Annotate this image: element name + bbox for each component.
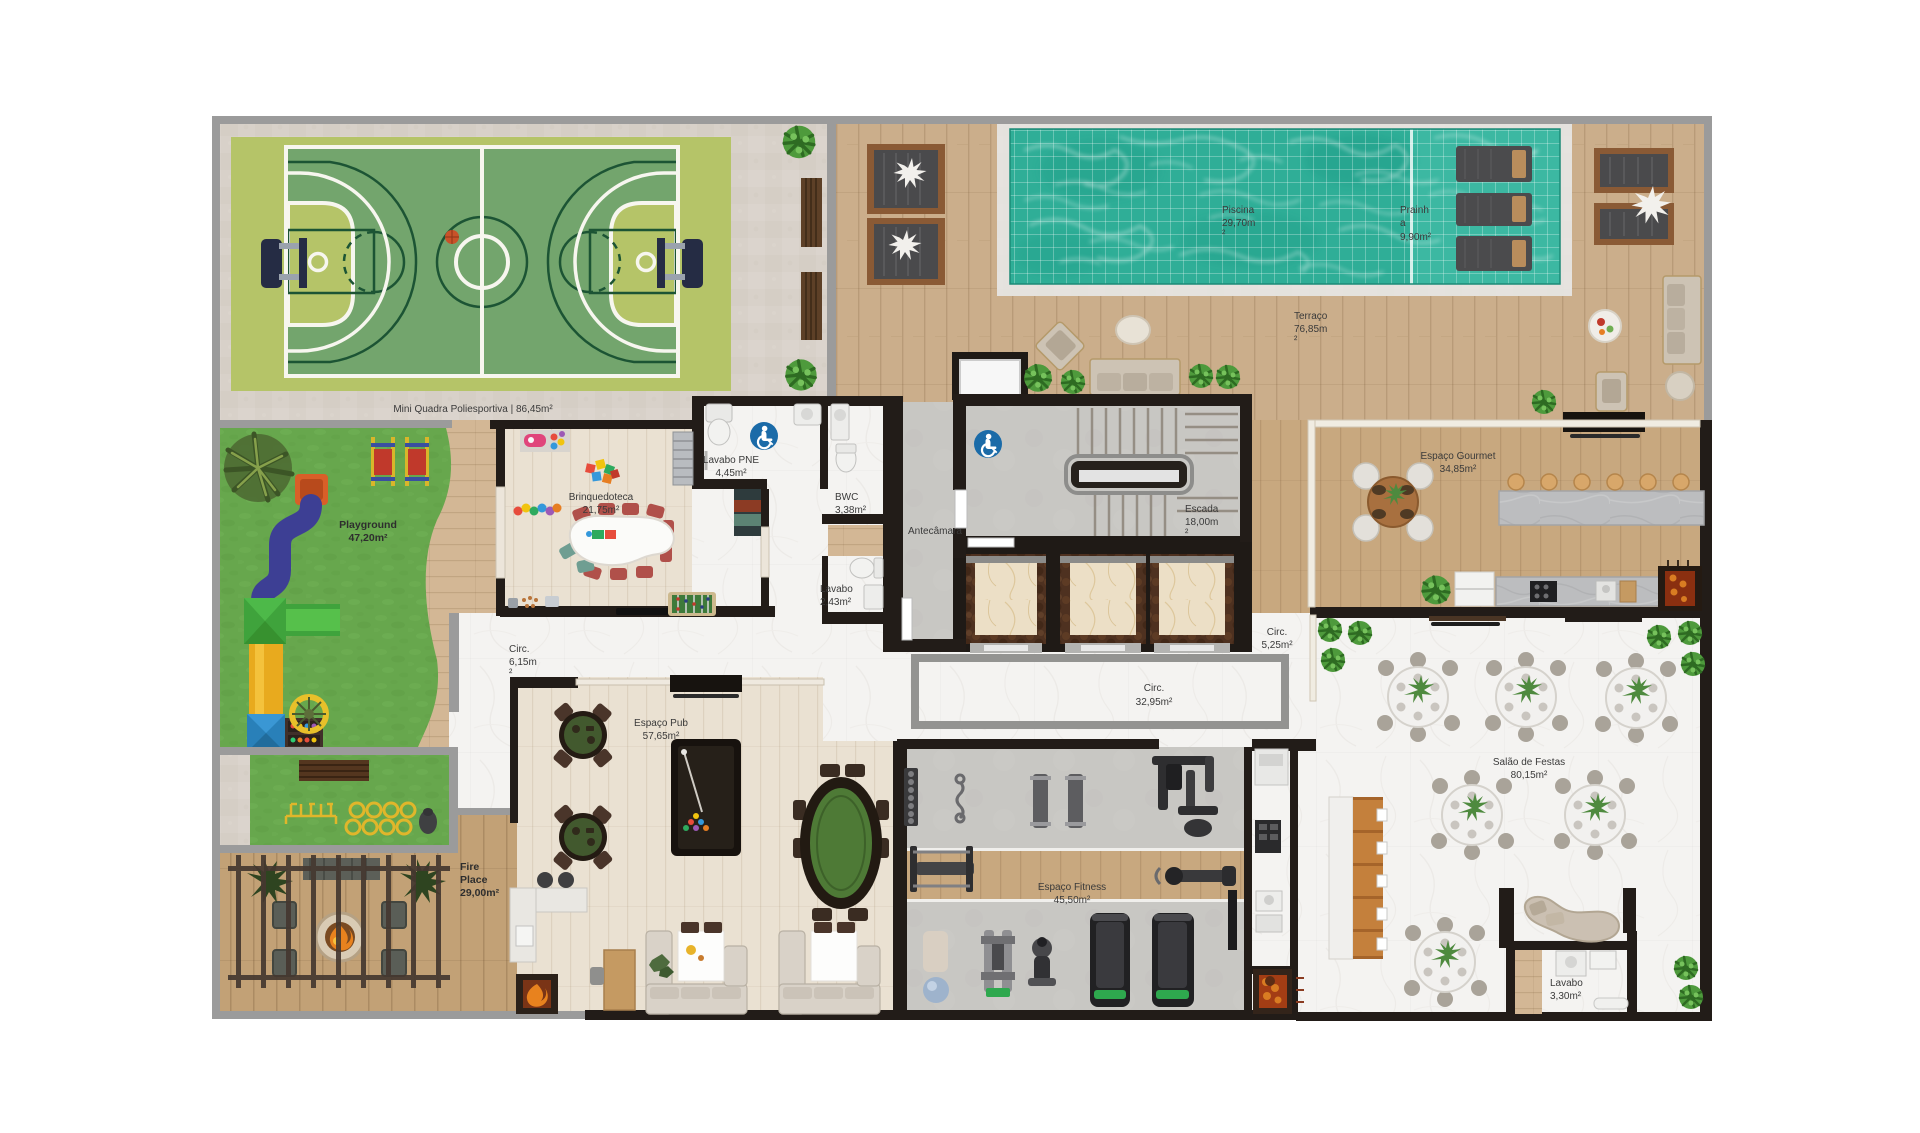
svg-text:47,20m²: 47,20m²: [348, 532, 388, 544]
svg-text:9,90m²: 9,90m²: [1400, 232, 1432, 243]
svg-text:57,65m²: 57,65m²: [643, 731, 680, 742]
svg-text:Fire: Fire: [460, 861, 479, 873]
svg-text:29,00m²: 29,00m²: [460, 887, 500, 899]
svg-text:Circ.: Circ.: [509, 644, 530, 655]
svg-text:Escada: Escada: [1185, 504, 1219, 515]
svg-text:4,45m²: 4,45m²: [715, 468, 747, 479]
svg-text:3,38m²: 3,38m²: [835, 505, 867, 516]
svg-text:Circ.: Circ.: [1267, 627, 1288, 638]
svg-text:18,00m: 18,00m: [1185, 517, 1218, 528]
svg-text:Playground: Playground: [339, 519, 397, 531]
svg-text:BWC: BWC: [835, 492, 858, 503]
svg-text:Espaço Fitness: Espaço Fitness: [1038, 882, 1106, 893]
svg-text:45,50m²: 45,50m²: [1054, 895, 1091, 906]
svg-text:34,85m²: 34,85m²: [1440, 464, 1477, 475]
svg-text:Circ.: Circ.: [1144, 683, 1165, 694]
svg-text:2,43m²: 2,43m²: [820, 597, 852, 608]
svg-text:76,85m: 76,85m: [1294, 324, 1327, 335]
svg-text:Brinquedoteca: Brinquedoteca: [569, 492, 634, 503]
svg-text:Mini Quadra Poliesportiva | 86: Mini Quadra Poliesportiva | 86,45m²: [393, 404, 553, 415]
svg-text:32,95m²: 32,95m²: [1136, 697, 1173, 708]
svg-text:a: a: [1400, 218, 1406, 229]
svg-text:3,30m²: 3,30m²: [1550, 991, 1582, 1002]
svg-text:6,15m: 6,15m: [509, 657, 537, 668]
svg-text:Espaço Pub: Espaço Pub: [634, 718, 688, 729]
svg-text:Antecâmara: Antecâmara: [908, 526, 962, 537]
svg-text:Salão de Festas: Salão de Festas: [1493, 757, 1565, 768]
svg-text:Lavabo: Lavabo: [1550, 978, 1583, 989]
svg-text:Terraço: Terraço: [1294, 311, 1328, 322]
svg-text:29,70m: 29,70m: [1222, 218, 1255, 229]
svg-text:Prainh: Prainh: [1400, 205, 1429, 216]
svg-text:80,15m²: 80,15m²: [1511, 770, 1548, 781]
svg-text:Piscina: Piscina: [1222, 205, 1255, 216]
svg-text:Place: Place: [460, 874, 488, 886]
svg-text:Espaço Gourmet: Espaço Gourmet: [1420, 451, 1495, 462]
svg-text:Lavabo: Lavabo: [820, 584, 853, 595]
svg-text:Lavabo PNE: Lavabo PNE: [703, 455, 759, 466]
svg-text:5,25m²: 5,25m²: [1261, 640, 1293, 651]
svg-text:21,75m²: 21,75m²: [583, 505, 620, 516]
